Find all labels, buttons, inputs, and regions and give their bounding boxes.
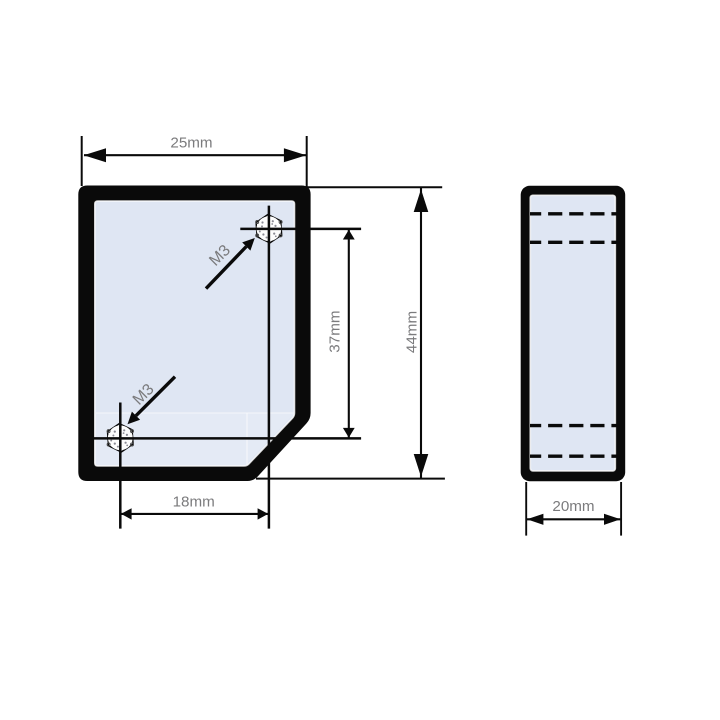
svg-text:18mm: 18mm <box>173 494 215 511</box>
svg-text:20mm: 20mm <box>552 498 594 515</box>
svg-text:37mm: 37mm <box>327 310 344 352</box>
svg-text:44mm: 44mm <box>403 311 420 353</box>
svg-text:25mm: 25mm <box>170 135 212 152</box>
